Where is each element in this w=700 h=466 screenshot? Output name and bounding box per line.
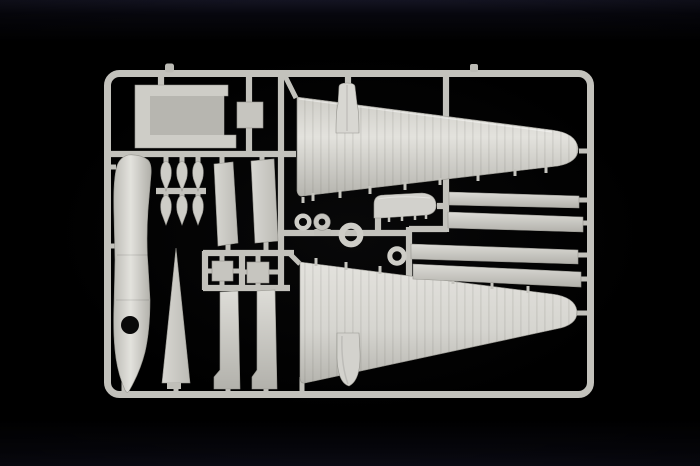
bomb-part xyxy=(193,161,204,191)
sprue-rendering xyxy=(0,0,700,466)
canopy-fairing-part xyxy=(374,193,436,222)
flap-panel xyxy=(251,159,278,243)
stepped-strut-parts xyxy=(214,290,277,389)
stepped-strut xyxy=(214,291,240,389)
spar-strip-parts xyxy=(411,192,583,287)
fuselage-half-part xyxy=(114,155,152,392)
upper-wing-half-part xyxy=(297,83,578,203)
cowl-ring-medium xyxy=(390,249,404,263)
bomb-part xyxy=(193,195,204,225)
flap-panel xyxy=(214,162,238,246)
fuselage-body xyxy=(114,155,152,392)
fuselage-opening xyxy=(121,316,139,334)
hatch-square xyxy=(247,262,269,283)
bomb-part xyxy=(177,195,188,225)
bomb-part xyxy=(161,195,172,225)
wheel-hub xyxy=(319,219,326,226)
model-kit-sprue-photo xyxy=(0,0,700,466)
fin-foot xyxy=(167,383,181,389)
small-panel-part xyxy=(237,102,263,128)
spar-strip xyxy=(411,244,578,264)
fin-triangle-part xyxy=(162,248,190,389)
flap-panel-parts xyxy=(214,159,278,246)
wheel-part xyxy=(314,214,331,236)
center-section-web xyxy=(150,96,224,135)
bomb-part xyxy=(161,161,172,191)
fin-triangle xyxy=(162,248,190,383)
underwing-pod xyxy=(337,333,360,386)
spar-strip xyxy=(449,192,579,208)
frame-nub xyxy=(165,64,174,73)
spar-strip xyxy=(448,212,583,232)
center-section-part xyxy=(135,85,236,148)
frame-nub xyxy=(470,64,478,72)
bomb-part xyxy=(177,161,188,191)
hatch-square xyxy=(212,261,233,281)
stepped-strut xyxy=(252,290,277,389)
cowl-ring-small xyxy=(297,216,310,229)
